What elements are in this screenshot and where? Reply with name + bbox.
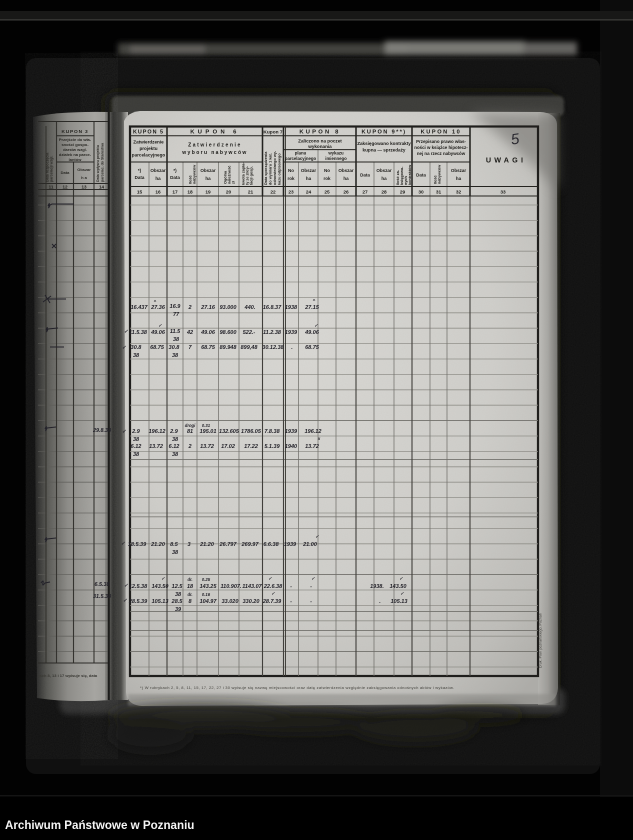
svg-text:ha: ha [381,176,387,181]
svg-text:11: 11 [49,185,54,190]
svg-text:17.22: 17.22 [244,444,258,450]
svg-text:7.8.38: 7.8.38 [264,429,280,435]
svg-text:68.75: 68.75 [150,345,165,351]
svg-text:38: 38 [133,437,140,443]
svg-text:19: 19 [205,190,211,196]
svg-text:21.00: 21.00 [302,542,317,548]
svg-text:Obszar: Obszar [338,168,354,173]
svg-text:28.5: 28.5 [171,599,184,605]
svg-text:143.50: 143.50 [390,584,407,590]
svg-text:KUPON 9**): KUPON 9**) [361,130,406,136]
svg-text:11.2.38: 11.2.38 [263,330,282,336]
svg-text:31.5.38: 31.5.38 [93,594,111,600]
svg-text:h a: h a [81,175,88,180]
svg-text:2: 2 [187,444,191,450]
svg-text:ha: ha [343,176,349,181]
svg-text:13.72: 13.72 [200,444,214,450]
svg-text:ha: ha [205,176,211,181]
svg-text:30: 30 [418,190,424,196]
svg-text:Data: Data [135,175,145,180]
svg-text:✓: ✓ [399,576,403,581]
svg-text:ności w książce hipotecz-: ności w książce hipotecz- [414,145,468,150]
svg-text:Archiwum Państwowe w Poznaniu: Archiwum Państwowe w Poznaniu [5,819,194,832]
svg-text:16.9: 16.9 [170,304,182,310]
svg-text:6.5.38: 6.5.38 [95,582,110,588]
svg-text:143.50: 143.50 [152,584,169,590]
svg-text:25: 25 [324,190,330,196]
svg-text:27.15: 27.15 [304,305,320,311]
svg-text:*) W rubrykach 2, 5, 8, 11, 15: *) W rubrykach 2, 5, 8, 11, 15, 17, 22, … [140,685,454,690]
svg-text:KUPON 3: KUPON 3 [62,129,89,135]
svg-text:21: 21 [248,190,254,196]
svg-text:0.31: 0.31 [202,423,211,428]
svg-text:*): *) [173,168,177,173]
svg-text:6.12: 6.12 [169,444,180,450]
svg-text:39: 39 [175,607,182,613]
svg-text:38: 38 [172,437,179,443]
svg-text:38: 38 [172,550,179,556]
svg-text:269.97: 269.97 [241,542,260,548]
svg-text:1939: 1939 [285,330,298,336]
svg-text:1143.07: 1143.07 [242,584,262,590]
svg-text:21.20: 21.20 [199,542,214,548]
svg-text:22: 22 [270,190,276,196]
svg-text:Data: Data [61,170,70,175]
svg-text:Przepisano prawo włas-: Przepisano prawo włas- [416,139,466,144]
svg-text:17: 17 [172,190,178,196]
svg-text:11.5: 11.5 [170,329,181,335]
svg-text:-: - [310,599,312,605]
svg-text:wykonania: wykonania [307,144,332,149]
svg-text:98.600: 98.600 [220,330,237,336]
svg-text:49.06: 49.06 [304,330,320,336]
svg-text:11.5.38: 11.5.38 [129,330,148,336]
svg-text:✓: ✓ [268,576,272,581]
svg-text:22.6.38: 22.6.38 [263,584,283,590]
svg-text:imiennego: imiennego [325,156,347,161]
svg-text:132.605: 132.605 [219,429,240,435]
svg-text:33.020: 33.020 [222,599,239,605]
svg-text:✓: ✓ [314,323,318,328]
svg-text:2: 2 [187,305,191,311]
svg-text:18: 18 [187,190,193,196]
svg-text:✓: ✓ [315,534,319,539]
svg-text:parcelacyjnego: parcelacyjnego [132,153,166,158]
svg-text:✓: ✓ [161,576,165,581]
svg-text:38: 38 [172,452,179,458]
svg-text:899,48: 899,48 [241,345,259,351]
svg-text:1938: 1938 [285,305,298,311]
svg-text:13.72: 13.72 [149,444,163,450]
svg-text:wykazu: wykazu [327,151,344,156]
svg-text:^: ^ [154,299,157,304]
svg-text:81: 81 [187,429,193,435]
svg-text:1940: 1940 [285,444,297,450]
svg-text:KUPON 6: KUPON 6 [190,130,240,136]
svg-text:nabywców: nabywców [193,165,197,184]
svg-text:Druk. Pow. poznańskiego, Pozna: Druk. Pow. poznańskiego, Poznań [539,613,543,668]
svg-text:tacji gosp.: tacji gosp. [250,166,254,185]
svg-text:12.5: 12.5 [172,584,184,590]
svg-text:lantów: lantów [69,157,83,162]
svg-text:32: 32 [456,190,462,196]
svg-text:522.-: 522.- [243,330,256,336]
svg-text:42: 42 [186,330,193,336]
svg-text:21.20: 21.20 [150,542,165,548]
svg-text:49.06: 49.06 [200,330,216,336]
svg-text:Zaksięgowano kontrakty: Zaksięgowano kontrakty [357,141,411,146]
svg-text:17.02: 17.02 [221,444,235,450]
svg-text:Data wpływu projektu: Data wpływu projektu [96,145,100,182]
svg-text:Obszar: Obszar [77,167,91,172]
svg-text:29.8.38: 29.8.38 [92,428,111,434]
svg-text:28: 28 [381,190,387,196]
svg-text:drogi: drogi [185,423,196,428]
svg-text:440.: 440. [244,305,256,311]
svg-text:105.13: 105.13 [152,599,169,605]
svg-text:30.8: 30.8 [131,345,143,351]
svg-text:27.36: 27.36 [150,305,166,311]
svg-text:330.20: 330.20 [243,599,260,605]
svg-text:-: - [290,599,292,605]
svg-text:89.948: 89.948 [220,345,238,351]
svg-text:Data sporządzenia: Data sporządzenia [264,151,268,185]
svg-text:27: 27 [362,190,368,196]
svg-text:UWAGI: UWAGI [486,156,526,165]
svg-text:parcelac. do Starostwa: parcelac. do Starostwa [101,142,105,182]
svg-text:do wymiaru 1 kat.: do wymiaru 1 kat. [269,153,273,185]
svg-text:rok: rok [287,176,295,181]
svg-text:18.5.39: 18.5.39 [128,542,147,548]
svg-text:6.12: 6.12 [131,444,142,450]
svg-text:5.1.39: 5.1.39 [264,444,280,450]
svg-text:143.25: 143.25 [200,584,218,590]
svg-text:38: 38 [133,353,140,359]
svg-text:0.16: 0.16 [202,592,211,597]
svg-text:77: 77 [173,312,180,318]
svg-text:16: 16 [155,190,161,196]
svg-text:24: 24 [306,190,312,196]
svg-text:13.72: 13.72 [305,444,319,450]
svg-text:kazu odpisowego: kazu odpisowego [278,153,282,185]
svg-text:Zatwierdzenie: Zatwierdzenie [133,140,164,145]
svg-text:^: ^ [313,298,316,303]
svg-text:12: 12 [62,185,68,190]
svg-text:rok: rok [323,176,331,181]
svg-text:*): *) [138,168,142,173]
svg-text:1786.05: 1786.05 [241,429,262,435]
svg-text:30.12.38: 30.12.38 [262,345,284,351]
svg-text:nej na rzecz nabywców: nej na rzecz nabywców [417,151,466,156]
svg-text:✓: ✓ [400,591,404,596]
svg-text:38: 38 [133,452,140,458]
svg-text:planu: planu [295,151,307,156]
svg-text:31: 31 [436,190,442,196]
svg-text:odnowiednego wy-: odnowiednego wy- [273,150,277,185]
svg-text:1939: 1939 [285,429,298,435]
svg-text:No: No [288,168,294,173]
svg-text:KUPON 8: KUPON 8 [299,130,340,136]
svg-text:Obszar: Obszar [301,168,317,173]
svg-text:68.75: 68.75 [305,345,320,351]
svg-text:dr.: dr. [187,577,192,582]
svg-text:20: 20 [226,190,232,196]
svg-text:KUPON 10: KUPON 10 [421,130,462,136]
svg-text:✓: ✓ [158,323,162,328]
svg-text:26.797: 26.797 [219,542,238,548]
svg-text:✓: ✓ [271,591,275,596]
svg-text:1938.: 1938. [370,584,384,590]
svg-text:14: 14 [99,185,105,190]
svg-text:✓: ✓ [311,576,315,581]
svg-text:1939: 1939 [284,542,297,548]
svg-text:No: No [324,168,330,173]
svg-text:Obszar: Obszar [376,168,392,173]
svg-text:Obszar: Obszar [200,168,216,173]
svg-text:KUPON 5: KUPON 5 [133,129,164,135]
svg-text:16.437: 16.437 [131,305,149,311]
svg-text:kontraktów: kontraktów [408,165,412,185]
svg-text:105.13: 105.13 [391,599,408,605]
svg-text:Obszar: Obszar [150,168,166,173]
svg-text:196.12: 196.12 [149,429,166,435]
svg-text:2.9: 2.9 [169,429,179,435]
svg-text:Zaliczono na poczet: Zaliczono na poczet [298,139,342,144]
svg-text:kupna — sprzedaży: kupna — sprzedaży [363,148,406,153]
svg-text:195.01: 195.01 [200,429,217,435]
svg-text:rach 8, 13 i 17 wpisuje się, d: rach 8, 13 i 17 wpisuje się, data [38,673,98,678]
svg-text:8.5: 8.5 [170,542,179,548]
svg-text:wyboru nabywców: wyboru nabywców [181,150,247,156]
svg-text:28.7.39: 28.7.39 [262,599,282,605]
svg-text:Data: Data [416,173,426,178]
svg-text:6.6.38: 6.6.38 [263,542,279,548]
svg-text:ha: ha [456,176,462,181]
svg-text:-: - [290,584,292,590]
svg-text:38: 38 [173,337,180,343]
svg-text:-: - [310,584,312,590]
svg-text:parcelacji wzgl.: parcelacji wzgl. [50,156,54,182]
svg-text:Data: Data [170,175,180,180]
svg-text:0.25: 0.25 [202,577,211,582]
svg-text:49.06: 49.06 [150,330,166,336]
svg-text:3: 3 [187,542,190,548]
svg-text:33: 33 [500,190,506,196]
svg-text:16.8.37: 16.8.37 [263,305,282,311]
svg-text:12.5.38: 12.5.38 [129,584,148,590]
svg-text:68.75: 68.75 [201,345,216,351]
svg-text:projektu: projektu [139,146,157,151]
svg-text:Data: Data [360,173,370,178]
svg-text:26: 26 [343,190,349,196]
svg-text:110.907.: 110.907. [220,584,241,590]
svg-text:2.9: 2.9 [131,429,141,435]
svg-text:23: 23 [288,190,294,196]
svg-text:196.12: 196.12 [305,429,322,435]
svg-text:dr.: dr. [187,592,192,597]
svg-text:38: 38 [172,353,179,359]
svg-text:parcelacyjnego: parcelacyjnego [285,156,317,161]
svg-text:Kupon 7: Kupon 7 [263,129,283,135]
svg-text:Zatwierdzenie: Zatwierdzenie [188,143,242,149]
svg-text:15: 15 [137,190,143,196]
svg-text:30.8: 30.8 [169,345,181,351]
svg-text:ha: ha [306,176,312,181]
svg-text:Obszar: Obszar [451,168,467,173]
svg-text:29: 29 [400,190,406,196]
svg-text:18: 18 [187,584,194,590]
svg-text:104.97: 104.97 [200,599,218,605]
svg-text:13: 13 [81,185,87,190]
svg-text:38: 38 [175,592,182,598]
svg-text:nabywców: nabywców [438,165,442,184]
svg-text:28.5.39: 28.5.39 [128,599,148,605]
svg-text:93.000: 93.000 [220,305,237,311]
svg-text:27.16: 27.16 [200,305,216,311]
svg-text:ha: ha [155,176,161,181]
